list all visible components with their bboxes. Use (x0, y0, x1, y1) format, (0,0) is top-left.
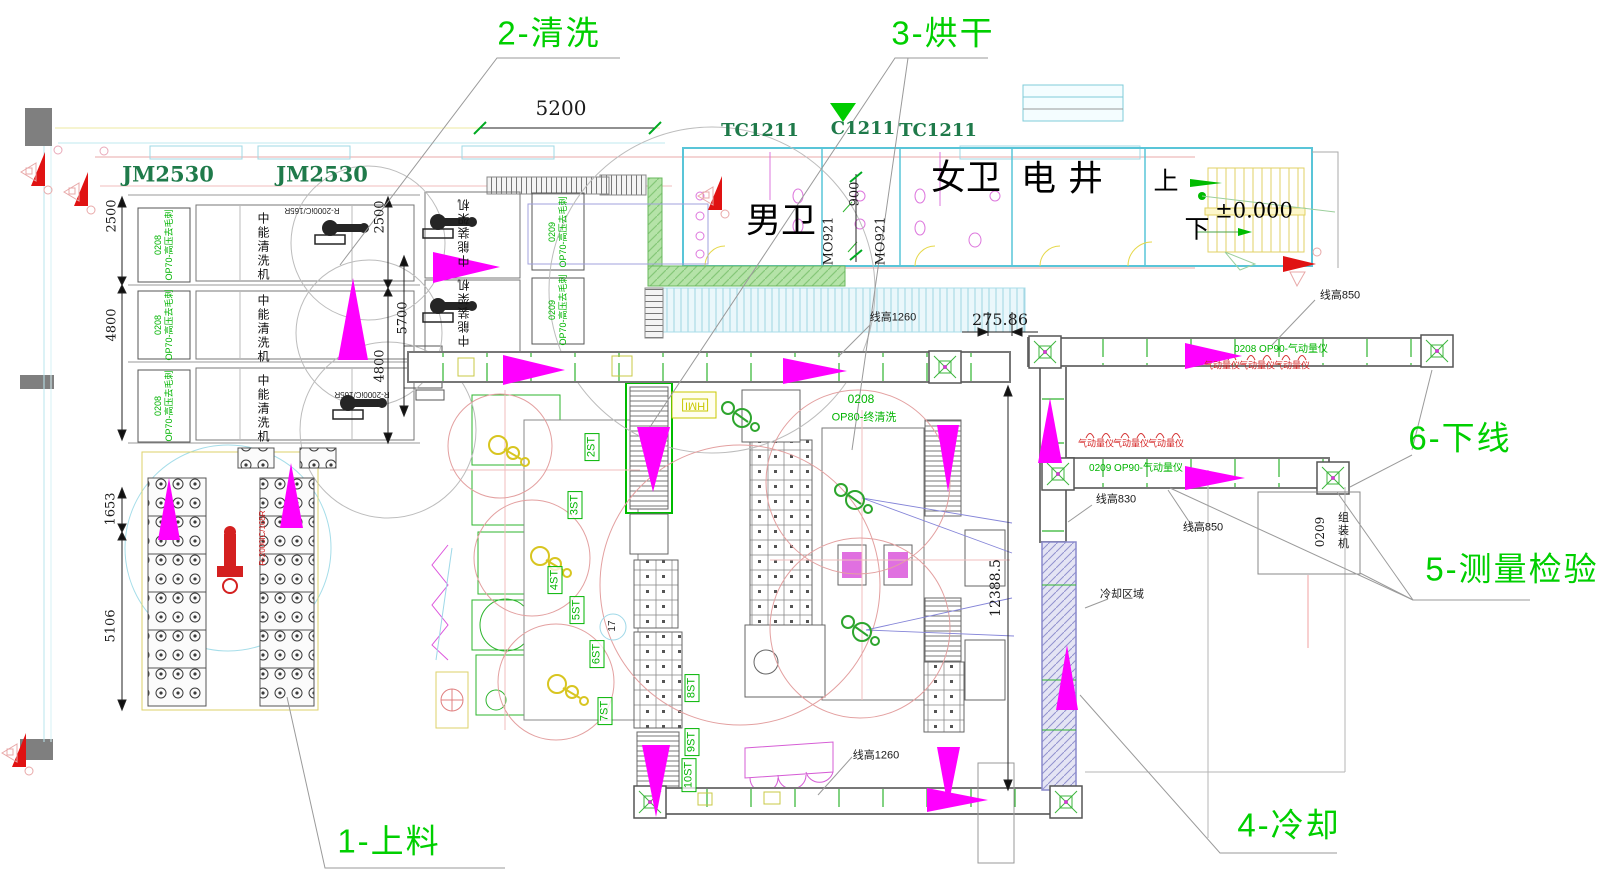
loader-code-box-1: 0209 OP70-高压去毛刺 (547, 196, 569, 267)
final-wash-process: OP80-终清洗 (832, 413, 897, 424)
station-label-2st: 2ST (585, 433, 600, 461)
step-label-washing: 2-清洗 (497, 17, 600, 50)
room-label-elec-shaft: 电井 (1021, 163, 1115, 198)
dim-4800-mid: 4800 (374, 349, 387, 382)
loading-racks (142, 448, 468, 728)
gauge-label-5: 气动量仪 (1113, 440, 1149, 449)
crane-label-tc1211-2: TC1211 (899, 122, 977, 140)
washer-name-2: 中能清洗机 (257, 294, 269, 364)
station-label-9st: 9ST (685, 728, 700, 756)
station-label-7st: 7ST (598, 697, 613, 725)
step-label-loading: 1-上料 (337, 825, 440, 858)
loader-code-box-2: 0209 OP70-高压去毛刺 (547, 274, 569, 345)
crane-label-jm2530-2: JM2530 (276, 164, 368, 185)
washer-code-box-2: 0208 OP70-高压去毛刺 (153, 289, 175, 360)
note-line-height-1260a: 线高1260 (870, 313, 916, 324)
structural-columns (20, 108, 54, 760)
door-label-mo921-1: MO921 (823, 217, 836, 266)
room-label-mens-wc: 男卫 (746, 205, 816, 240)
station-label-17: 17 (608, 620, 618, 631)
gauge-label-2: 气动量仪 (1239, 362, 1275, 371)
station-label-4st: 4ST (548, 566, 563, 594)
note-line-height-850a: 线高850 (1320, 291, 1360, 302)
floor-level-label: ±0.000 (1215, 201, 1293, 222)
note-line-height-830: 线高830 (1096, 495, 1136, 506)
final-wash-code: 0208 (848, 393, 875, 405)
gauge-label-4: 气动量仪 (1078, 440, 1114, 449)
note-cooling-zone: 冷却区域 (1100, 590, 1144, 601)
factory-floorplan: 2-清洗 3-烘干 1-上料 4-冷却 5-测量检验 6-下线 JM2530 J… (0, 0, 1600, 879)
stairs-up-label: 上 (1153, 169, 1178, 194)
note-line-height-1260b: 线高1260 (853, 751, 899, 762)
machine-process: OP70-高压去毛刺 (164, 289, 175, 360)
washing-line (128, 192, 708, 443)
door-label-mo921-2: MO921 (875, 217, 888, 266)
machine-code: 0209 (547, 274, 558, 345)
loader-name-2: 中能装架机 (458, 277, 470, 347)
robot-model-label-1: R-2000iC/165R (284, 206, 339, 214)
gauge-line-label-0209: 0209 OP90-气动量仪 (1089, 464, 1183, 474)
flow-arrow-up-washer (338, 278, 368, 360)
station-label-3st: 3ST (568, 491, 583, 519)
machine-process: OP70-高压去毛刺 (164, 209, 175, 280)
washer-code-box-3: 0208 OP70-高压去毛刺 (153, 370, 175, 441)
step-label-drying: 3-烘干 (891, 17, 994, 50)
hmi-label: HMI (682, 399, 708, 412)
station-label-5st: 5ST (570, 596, 585, 624)
cooling-conveyor (1042, 542, 1076, 790)
washer-code-box-1: 0208 OP70-高压去毛刺 (153, 209, 175, 280)
dim-5106: 5106 (105, 609, 118, 642)
dim-5200: 5200 (536, 98, 587, 118)
station-label-8st: 8ST (685, 674, 700, 702)
dim-12388: 12388.5 (989, 559, 1003, 617)
dim-1653: 1653 (105, 492, 118, 525)
crane-label-c1211: C1211 (831, 120, 895, 138)
gauge-label-3: 气动量仪 (1274, 362, 1310, 371)
crane-label-tc1211-1: TC1211 (721, 122, 799, 140)
gauge-label-1: 气动量仪 (1204, 362, 1240, 371)
drawing-linework (0, 0, 1600, 879)
robot-model-label-red: R-2000iC/165R (259, 510, 267, 565)
dim-4800-left: 4800 (106, 308, 119, 341)
dim-2500-left: 2500 (106, 199, 119, 232)
crane-label-jm2530-1: JM2530 (122, 164, 214, 185)
assembler-code: 0209 (1314, 517, 1326, 548)
machine-code: 0208 (153, 209, 164, 280)
duct-outline (745, 742, 833, 792)
machine-process: OP70-高压去毛刺 (558, 196, 569, 267)
machine-code: 0208 (153, 289, 164, 360)
gauge-label-6: 气动量仪 (1148, 440, 1184, 449)
dim-900: 900 (849, 182, 862, 207)
stairs-down-label: 下 (1184, 217, 1209, 242)
gauge-line-label-0208: 0208 OP90-气动量仪 (1234, 345, 1328, 355)
washer-name-3: 中能清洗机 (257, 374, 269, 444)
step-label-offline: 6-下线 (1408, 422, 1511, 455)
dim-275: 275.86 (972, 312, 1028, 328)
station-label-10st: 10ST (682, 758, 697, 792)
note-line-height-850b: 线高850 (1183, 523, 1223, 534)
elevator-table (1023, 85, 1123, 121)
dim-2500-mid: 2500 (374, 200, 387, 233)
robot-model-label-2: R-2000iC/165R (334, 390, 389, 398)
dim-5700-mid: 5700 (397, 301, 410, 334)
machine-code: 0209 (547, 196, 558, 267)
station-label-6st: 6ST (590, 640, 605, 668)
room-label-womens-wc: 女卫 (931, 162, 1001, 197)
machine-process: OP70-高压去毛刺 (164, 370, 175, 441)
step-label-measuring: 5-测量检验 (1425, 553, 1598, 586)
flow-arrows (158, 252, 1245, 817)
assembler-name: 组装机 (1337, 512, 1348, 551)
machine-process: OP70-高压去毛刺 (558, 274, 569, 345)
step-label-cooling: 4-冷却 (1237, 809, 1340, 842)
loader-name-1: 中能装架机 (458, 197, 470, 267)
washer-name-1: 中能清洗机 (257, 212, 269, 282)
machine-code: 0208 (153, 370, 164, 441)
